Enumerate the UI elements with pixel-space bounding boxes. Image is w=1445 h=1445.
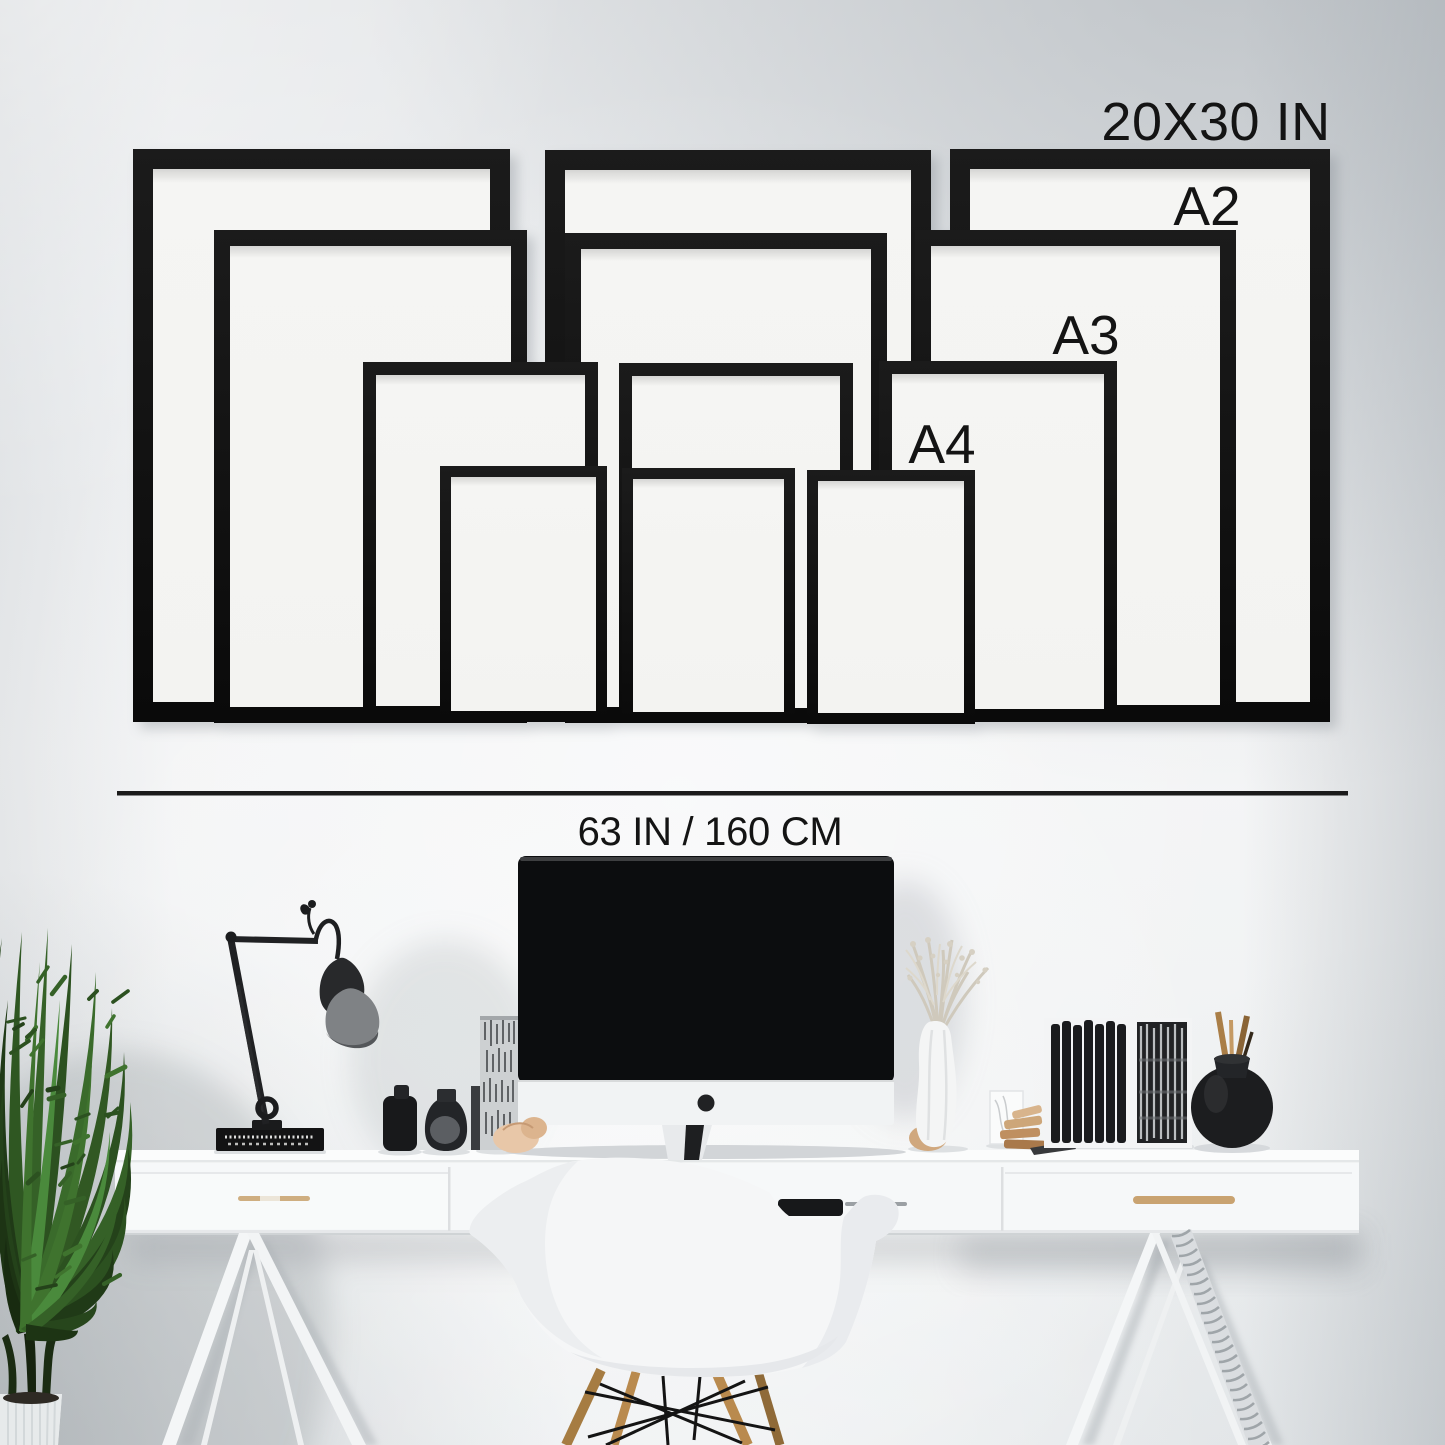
svg-text:20X30 IN: 20X30 IN	[1101, 92, 1330, 152]
svg-text:A2: A2	[1173, 175, 1240, 237]
svg-text:63 IN / 160 CM: 63 IN / 160 CM	[578, 810, 843, 854]
svg-text:A4: A4	[908, 413, 975, 475]
svg-text:A3: A3	[1052, 304, 1119, 366]
